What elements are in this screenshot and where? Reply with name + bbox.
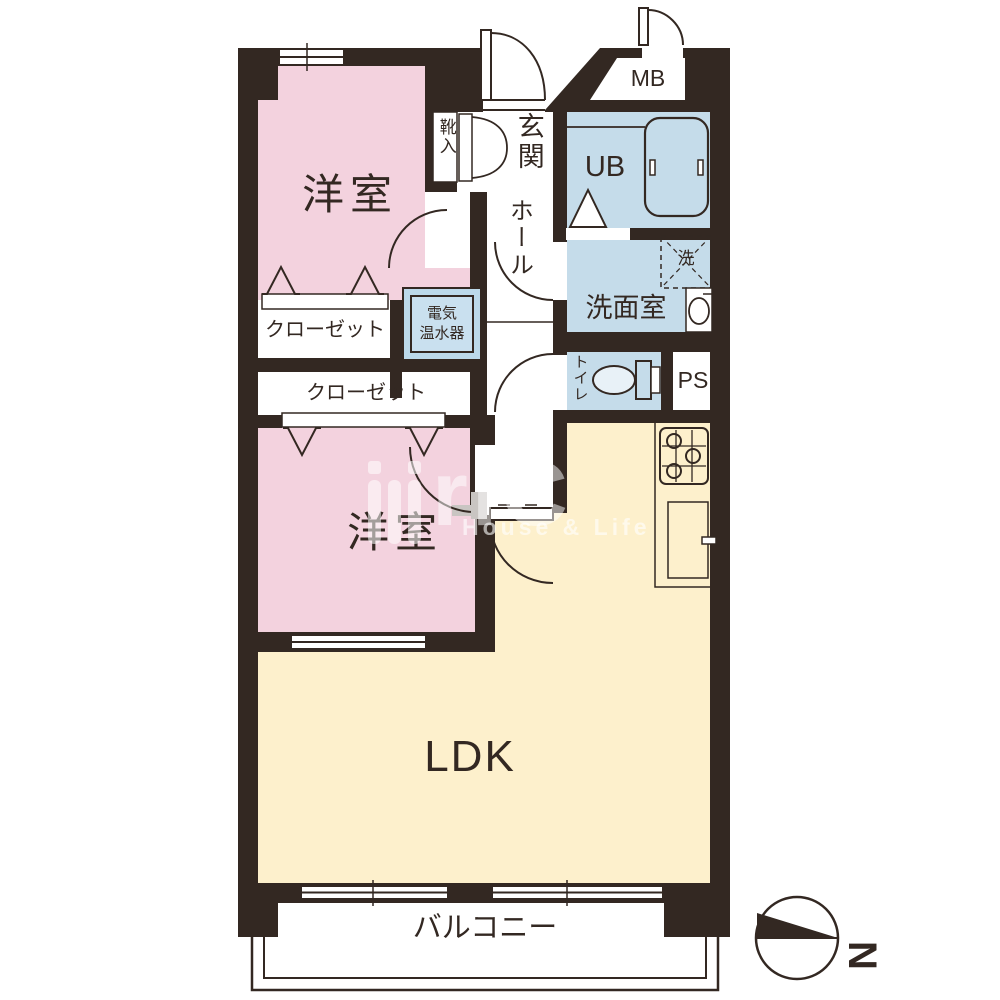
north-compass: N [756, 897, 884, 979]
toilet-label: トイレ [571, 354, 588, 402]
window-ldk-left [302, 880, 447, 906]
closet-1-label: クローゼット [259, 319, 391, 341]
watermark-tagline: House & Life [462, 514, 651, 541]
window-ldk-right [493, 880, 662, 906]
unit-bath-label: UB [575, 152, 635, 184]
kitchen-counter [668, 502, 716, 578]
washroom-sink [686, 288, 714, 332]
ldk-label: LDK [400, 733, 540, 781]
meter-box-label: MB [614, 66, 682, 91]
toilet-fixture [593, 361, 660, 399]
exterior-diagonal-cut [545, 48, 600, 110]
washroom-label: 洗面室 [571, 294, 681, 324]
watermark-logo-bar [388, 480, 401, 544]
shoe-cabinet-door-icon [459, 114, 507, 181]
north-label: N [840, 941, 884, 970]
watermark-logo-dot [368, 461, 381, 474]
watermark-logo-dot [408, 461, 421, 474]
watermark-logo-bar [408, 480, 421, 544]
laundry-space-label: 洗 [674, 250, 698, 269]
pipe-space-label: PS [673, 368, 713, 393]
watermark-logo-bar [368, 480, 381, 544]
stove [660, 428, 708, 484]
western-room-1-door-arc [389, 210, 447, 268]
shoe-cabinet-label: 靴入 [436, 118, 455, 156]
entrance-label: 玄関 [513, 112, 543, 172]
closet-2-label: クローゼット [300, 382, 432, 404]
bath-door-icon [566, 190, 630, 240]
closet-2-door [282, 413, 445, 455]
balcony-label: バルコニー [385, 913, 585, 945]
floor-plan: 電気 温水器 [0, 0, 1000, 1000]
hall-label: ホール [505, 198, 531, 279]
western-room-1-label: 洋室 [270, 172, 430, 218]
window-top [280, 43, 343, 71]
corridor-door [639, 8, 683, 58]
toilet-door [495, 354, 567, 412]
window-room2 [292, 634, 425, 650]
closet-1-door [262, 267, 388, 309]
entrance-door [481, 30, 545, 110]
